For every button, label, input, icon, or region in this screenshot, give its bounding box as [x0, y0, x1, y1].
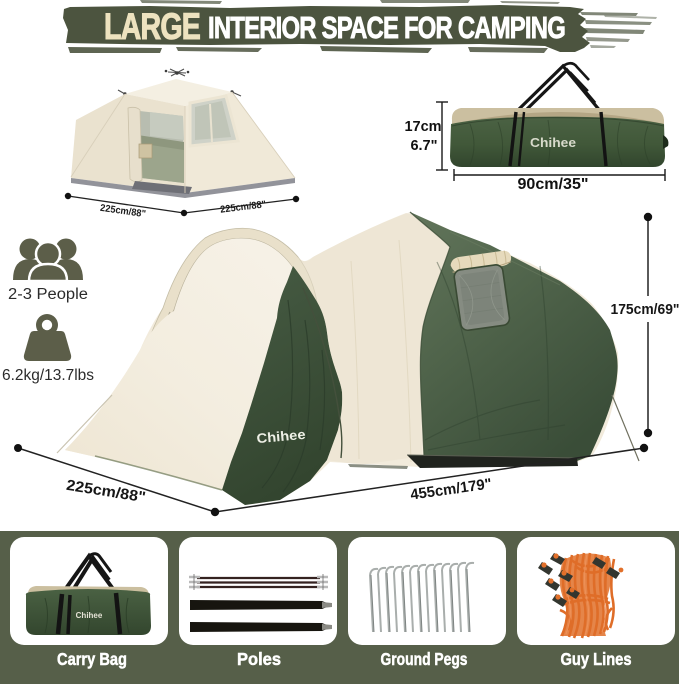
- svg-text:Poles: Poles: [237, 649, 281, 669]
- svg-text:Chihee: Chihee: [76, 611, 103, 620]
- svg-text:17cm: 17cm: [404, 119, 441, 135]
- svg-text:Carry Bag: Carry Bag: [57, 649, 127, 669]
- svg-text:INTERIOR SPACE FOR CAMPING: INTERIOR SPACE FOR CAMPING: [208, 10, 565, 45]
- svg-text:LARGE: LARGE: [104, 6, 200, 47]
- svg-text:175cm/69": 175cm/69": [611, 302, 679, 318]
- svg-text:455cm/179": 455cm/179": [409, 475, 493, 503]
- svg-text:225cm/88": 225cm/88": [65, 477, 147, 506]
- svg-text:6.7": 6.7": [410, 138, 437, 154]
- svg-text:Chihee: Chihee: [530, 136, 576, 150]
- svg-text:Guy Lines: Guy Lines: [561, 649, 632, 669]
- svg-text:Ground Pegs: Ground Pegs: [381, 649, 468, 669]
